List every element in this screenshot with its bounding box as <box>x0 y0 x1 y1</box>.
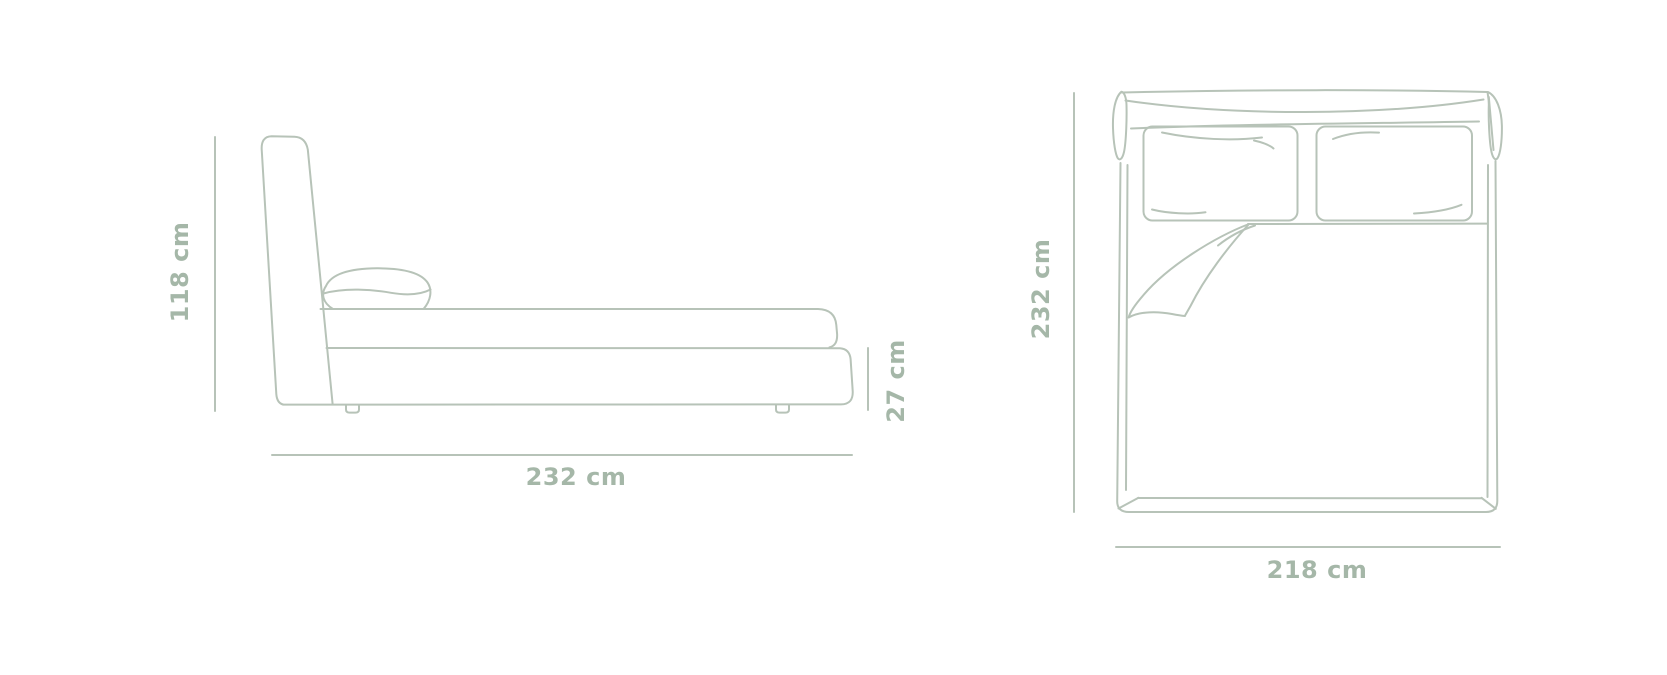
top-view-figure <box>1000 60 1580 600</box>
top-depth-label: 232 cm <box>1026 229 1056 349</box>
side-base-height-label: 27 cm <box>881 321 911 441</box>
side-feet <box>346 405 789 413</box>
side-headboard <box>262 136 333 404</box>
top-pillow-right <box>1317 127 1473 221</box>
bed-side-view-drawing <box>100 100 940 500</box>
bed-top-view-drawing <box>1000 60 1580 600</box>
side-base-frame <box>283 348 853 405</box>
side-height-label: 118 cm <box>165 212 195 332</box>
bed-dimensions-diagram: 118 cm 232 cm 27 cm 232 cm 218 cm <box>0 0 1667 675</box>
side-mattress <box>321 309 838 347</box>
top-headboard-roll <box>1113 90 1502 159</box>
side-pillow <box>323 268 430 309</box>
top-pillow-left <box>1144 127 1298 221</box>
side-length-label: 232 cm <box>516 462 636 492</box>
top-width-label: 218 cm <box>1257 555 1377 585</box>
side-view-figure <box>100 100 940 500</box>
top-sheet-fold <box>1129 224 1488 318</box>
